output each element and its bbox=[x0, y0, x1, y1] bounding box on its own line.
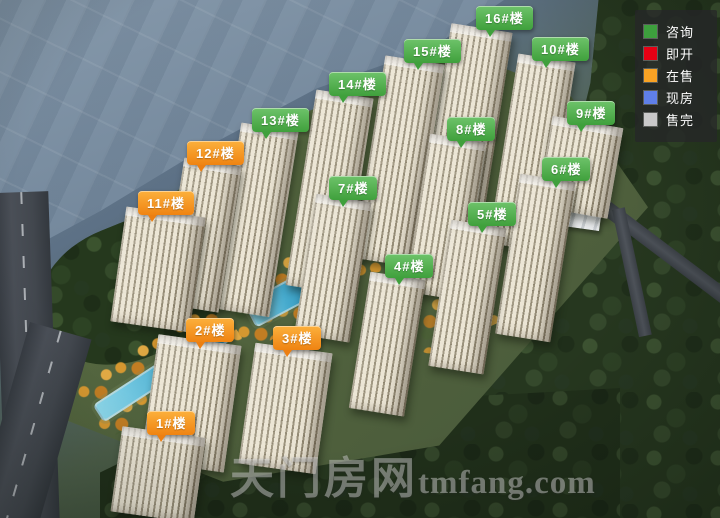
legend-label: 即开 bbox=[666, 44, 694, 63]
legend-label: 售完 bbox=[666, 110, 694, 129]
building-label-15[interactable]: 15#楼 bbox=[404, 39, 461, 63]
building-label-1[interactable]: 1#楼 bbox=[147, 411, 195, 435]
building-label-13[interactable]: 13#楼 bbox=[252, 108, 309, 132]
legend-label: 咨询 bbox=[666, 22, 694, 41]
legend: 咨询 即开 在售 现房 售完 bbox=[635, 10, 717, 142]
legend-swatch-consult bbox=[644, 25, 657, 38]
legend-swatch-soldout bbox=[644, 113, 657, 126]
legend-label: 在售 bbox=[666, 66, 694, 85]
legend-item-consult: 咨询 bbox=[644, 23, 710, 40]
legend-swatch-ready bbox=[644, 91, 657, 104]
legend-item-opening: 即开 bbox=[644, 45, 710, 62]
building-label-5[interactable]: 5#楼 bbox=[468, 202, 516, 226]
masterplan-aerial-view: 1#楼 2#楼 3#楼 4#楼 5#楼 6#楼 7#楼 8#楼 9#楼 10#楼… bbox=[0, 0, 720, 518]
building-label-16[interactable]: 16#楼 bbox=[476, 6, 533, 30]
building-label-3[interactable]: 3#楼 bbox=[273, 326, 321, 350]
building-label-12[interactable]: 12#楼 bbox=[187, 141, 244, 165]
legend-swatch-onsale bbox=[644, 69, 657, 82]
building-label-8[interactable]: 8#楼 bbox=[447, 117, 495, 141]
building-label-10[interactable]: 10#楼 bbox=[532, 37, 589, 61]
building-tower bbox=[110, 206, 205, 332]
legend-label: 现房 bbox=[666, 88, 694, 107]
building-label-7[interactable]: 7#楼 bbox=[329, 176, 377, 200]
building-label-4[interactable]: 4#楼 bbox=[385, 254, 433, 278]
building-label-9[interactable]: 9#楼 bbox=[567, 101, 615, 125]
building-label-14[interactable]: 14#楼 bbox=[329, 72, 386, 96]
legend-swatch-opening bbox=[644, 47, 657, 60]
legend-item-onsale: 在售 bbox=[644, 67, 710, 84]
building-label-6[interactable]: 6#楼 bbox=[542, 157, 590, 181]
building-label-2[interactable]: 2#楼 bbox=[186, 318, 234, 342]
legend-item-ready: 现房 bbox=[644, 89, 710, 106]
building-label-11[interactable]: 11#楼 bbox=[138, 191, 194, 215]
legend-item-soldout: 售完 bbox=[644, 111, 710, 128]
